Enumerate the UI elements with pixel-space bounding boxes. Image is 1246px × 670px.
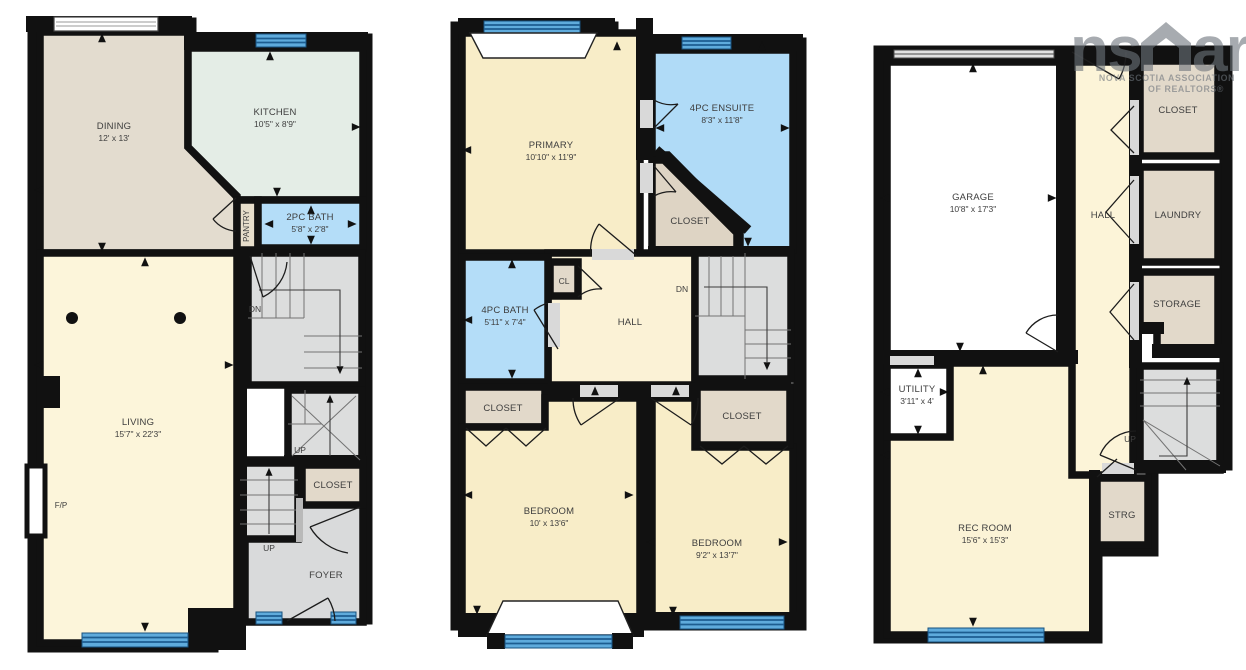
window-living [82, 633, 188, 647]
window-rec-room [928, 628, 1044, 642]
label-garage: GARAGE [952, 192, 994, 203]
label-utility-dims: 3'11" x 4' [900, 396, 934, 406]
window-primary-bay [470, 21, 597, 58]
label-living: LIVING [122, 417, 154, 428]
window-foyer-left [256, 612, 282, 624]
logo-association-line1: NOVA SCOTIA ASSOCIATION [1099, 73, 1235, 83]
label-utility: UTILITY [899, 384, 936, 395]
label-foyer-stairs-up: UP [263, 543, 275, 553]
label-bedroom1-dims: 10' x 13'6" [530, 518, 569, 528]
label-primary: PRIMARY [529, 140, 574, 151]
window-ensuite [682, 37, 731, 49]
window-bedroom2 [680, 616, 784, 629]
label-bedroom2-dims: 9'2" x 13'7" [696, 550, 738, 560]
label-closet-bedroom1: CLOSET [483, 403, 522, 414]
label-closet-bedroom2: CLOSET [722, 411, 761, 422]
column-dot-right [174, 312, 186, 324]
floorplan-canvas: DINING 12' x 13' KITCHEN 10'5" x 8'9" PA… [0, 0, 1246, 670]
label-kitchen: KITCHEN [253, 107, 296, 118]
label-pantry: PANTRY [242, 209, 251, 241]
label-stairs-up-level1: UP [294, 445, 306, 455]
floorplan-level-2: PRIMARY 10'10" x 11'9" 4PC ENSUITE 8'3" … [457, 18, 804, 649]
stairs-level1-down [248, 253, 362, 385]
label-living-dims: 15'7" x 22'3" [115, 429, 162, 439]
floorplan-level-1: DINING 12' x 13' KITCHEN 10'5" x 8'9" PA… [26, 16, 368, 650]
label-closet-level3: CLOSET [1158, 105, 1197, 116]
label-bedroom2: BEDROOM [692, 538, 743, 549]
label-garage-dims: 10'8" x 17'3" [950, 204, 997, 214]
label-hall-level3: HALL [1091, 210, 1116, 221]
label-rec-room-dims: 15'6" x 15'3" [962, 535, 1009, 545]
label-2pc-bath: 2PC BATH [286, 212, 333, 223]
label-cl: CL [559, 276, 570, 286]
label-rec-room: REC ROOM [958, 523, 1012, 534]
garage-door [894, 50, 1054, 58]
label-kitchen-dims: 10'5" x 8'9" [254, 119, 296, 129]
label-laundry: LAUNDRY [1155, 210, 1202, 221]
label-storage: STORAGE [1153, 299, 1201, 310]
label-2pc-bath-dims: 5'8" x 2'8" [291, 224, 328, 234]
label-foyer: FOYER [309, 570, 343, 581]
floorplan-sheet: DINING 12' x 13' KITCHEN 10'5" x 8'9" PA… [0, 0, 1246, 670]
label-ensuite-dims: 8'3" x 11'8" [701, 115, 742, 125]
label-walkin-closet: CLOSET [670, 216, 709, 227]
label-stairs-dn-level1: DN [249, 304, 261, 314]
label-bedroom1: BEDROOM [524, 506, 575, 517]
column-dot-left [66, 312, 78, 324]
room-living [40, 253, 237, 643]
room-hall-level3 [1072, 62, 1133, 475]
label-dining-dims: 12' x 13' [98, 133, 130, 143]
label-strg: STRG [1108, 510, 1135, 521]
label-4pc-bath-dims: 5'11" x 7'4" [484, 317, 525, 327]
label-ensuite: 4PC ENSUITE [690, 103, 755, 114]
label-fireplace: F/P [55, 501, 67, 510]
stairs-level3-up [1140, 366, 1220, 470]
label-stairs-dn-level2: DN [676, 284, 688, 294]
label-closet-level1: CLOSET [313, 480, 352, 491]
label-hall-level2: HALL [618, 317, 643, 328]
label-stairs-up-level3: UP [1124, 434, 1136, 444]
label-dining: DINING [97, 121, 131, 132]
logo-association-line2: OF REALTORS® [1148, 84, 1224, 94]
label-4pc-bath: 4PC BATH [481, 305, 528, 316]
label-primary-dims: 10'10" x 11'9" [526, 152, 577, 162]
window-kitchen [256, 34, 306, 47]
window-bedroom1-bay [487, 601, 633, 649]
fireplace-alcove [27, 466, 45, 536]
window-dining-bay [54, 17, 158, 31]
